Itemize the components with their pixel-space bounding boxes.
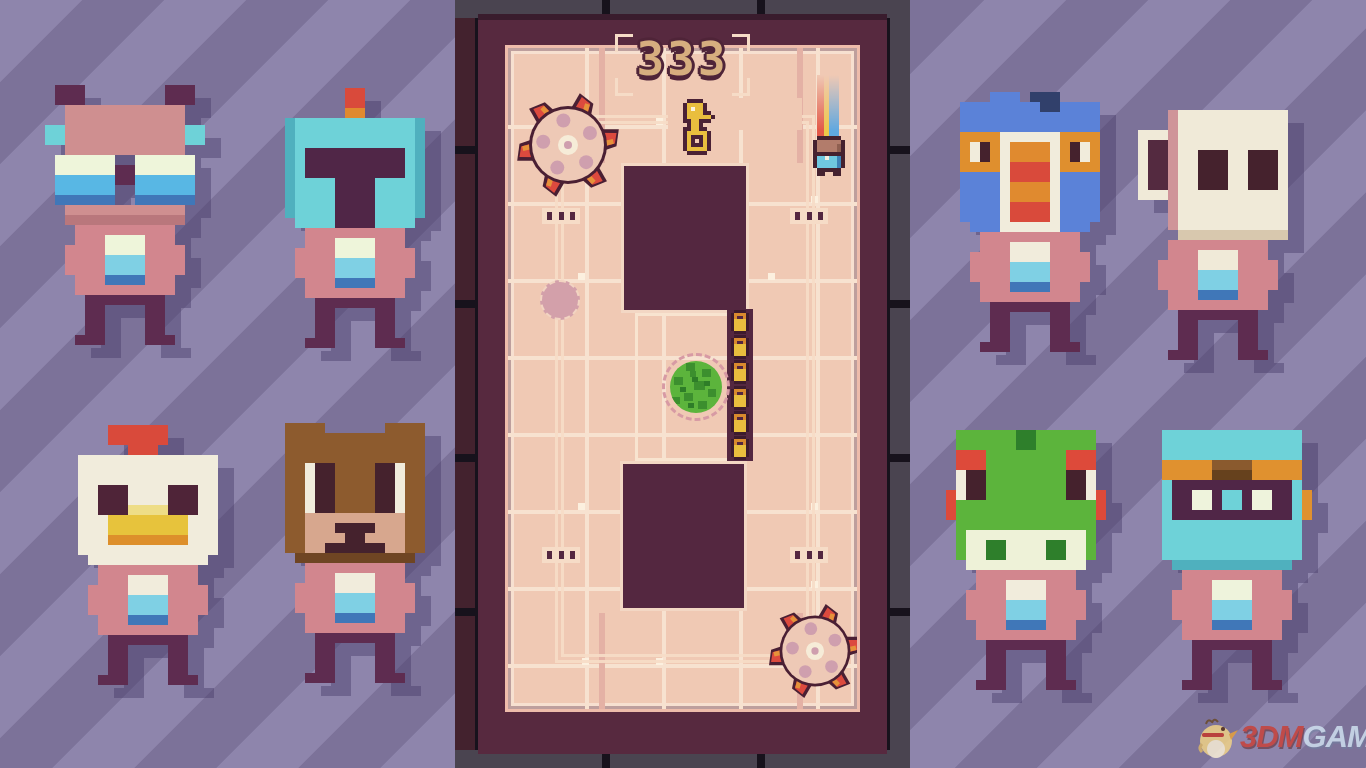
player-cat [813, 136, 849, 176]
score-display: 333 [617, 28, 748, 90]
gate-marker [542, 547, 580, 563]
wall-bricks-right [887, 0, 910, 768]
character-knight[interactable] [275, 88, 435, 348]
saw-blade-icon-top [513, 90, 623, 200]
key-icon [679, 99, 719, 155]
arena-floor [505, 45, 860, 712]
hedge-obstacle [668, 359, 724, 415]
gate-marker [790, 208, 828, 224]
character-turkey[interactable] [950, 92, 1110, 352]
game-board: 333 [455, 0, 910, 768]
character-mug[interactable] [1138, 100, 1298, 360]
character-knight-sprite [275, 88, 435, 348]
pit-top [621, 163, 749, 313]
pressure-pad [540, 280, 580, 320]
character-turkey-sprite [950, 92, 1110, 352]
key-token-icon [731, 436, 749, 460]
character-bear[interactable] [275, 423, 435, 683]
character-chicken-sprite [68, 425, 228, 685]
game-screen: 333 3DMGAME [0, 0, 1366, 768]
key-token-icon [731, 360, 749, 384]
watermark-suffix-text: GAME [1302, 719, 1366, 755]
saw-blade-icon-bottom [765, 601, 860, 701]
wall-bricks-left [455, 0, 478, 768]
character-bear-sprite [275, 423, 435, 683]
watermark-brand-text: 3DM [1240, 719, 1302, 755]
key-token-icon [731, 335, 749, 359]
gate-marker [542, 208, 580, 224]
key-token-icon [731, 310, 749, 334]
chick-mascot-icon [1196, 714, 1240, 760]
character-bat-sprite [45, 85, 205, 345]
character-frog-sprite [946, 430, 1106, 690]
rainbow-trail [817, 75, 839, 137]
gate-marker [790, 547, 828, 563]
character-aviator-sprite [1152, 430, 1312, 690]
key-token-icon [731, 411, 749, 435]
character-mug-sprite [1138, 100, 1298, 360]
key-token-column [727, 309, 753, 461]
character-chicken[interactable] [68, 425, 228, 685]
character-frog[interactable] [946, 430, 1106, 690]
pit-bottom [620, 461, 747, 611]
watermark-3dmgame: 3DMGAME [1196, 714, 1366, 760]
key-token-icon [731, 386, 749, 410]
character-aviator[interactable] [1152, 430, 1312, 690]
character-bat[interactable] [45, 85, 205, 345]
